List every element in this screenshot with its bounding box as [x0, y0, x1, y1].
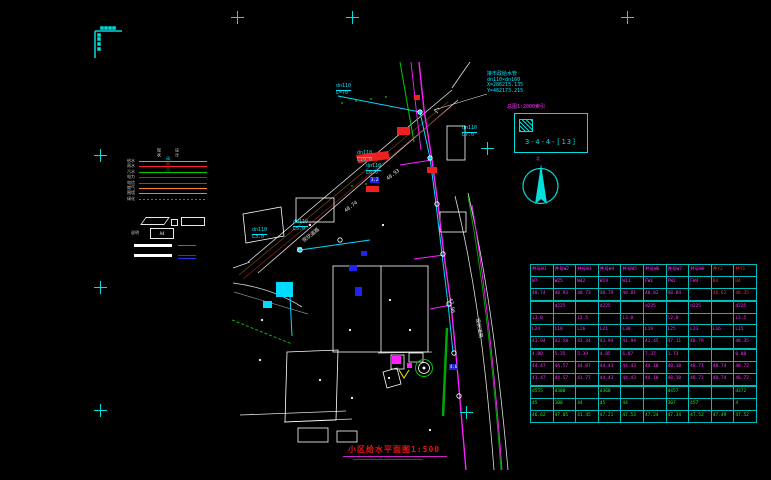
table-cell: L23 [689, 325, 712, 337]
legend-line-sample [139, 188, 207, 189]
table-cell: L30 [621, 325, 644, 337]
table-cell [531, 302, 554, 314]
table-cell: 41.45 [576, 411, 599, 423]
table-cell [712, 399, 735, 411]
water-pipe-cyan [263, 96, 453, 352]
table-cell: 47.34 [667, 411, 690, 423]
table-cell: 井号W1 [531, 265, 554, 277]
north-arrow-icon [523, 164, 558, 204]
legend-magenta-line [178, 245, 196, 246]
table-cell: 457 [689, 399, 712, 411]
table-cell [689, 289, 712, 302]
legend-symbol: 雨 [166, 162, 170, 166]
table-cell: 井Y1 [734, 265, 757, 277]
table-cell: L19 [644, 325, 667, 337]
table-cell: W42 [576, 277, 599, 289]
legend-blue-line [178, 255, 196, 259]
pipe-label: dn110L6.0 [366, 164, 381, 176]
table-cell: 47.53 [621, 411, 644, 423]
table-cell: 44.43 [599, 374, 622, 387]
legend-row-label: 电信 [127, 181, 135, 185]
table-cell: 47.52 [734, 411, 757, 423]
table-cell: i3.5 [734, 314, 757, 326]
legend-symbol: 阀 [166, 157, 170, 161]
legend-line-sample [139, 199, 207, 200]
table-cell: L24 [531, 325, 554, 337]
table-cell [644, 387, 667, 399]
table-cell: 47.52 [689, 411, 712, 423]
table-cell: i3.0 [621, 314, 644, 326]
table-cell: 47.11 [667, 337, 690, 350]
table-cell: 48.79 [599, 289, 622, 302]
legend-symbol: 污 [166, 168, 170, 172]
table-cell: 4.80 [531, 350, 554, 362]
table-cell: L25 [667, 325, 690, 337]
table-cell: 48.72 [734, 374, 757, 387]
legend-rectangle [181, 217, 205, 226]
blue-marks [349, 251, 367, 296]
legend-line-sample [139, 172, 207, 173]
table-cell: 48.79 [689, 337, 712, 350]
table-cell: W25 [554, 277, 577, 289]
table-cell: 47.05 [554, 411, 577, 423]
table-cell: 井号W8 [689, 265, 712, 277]
table-cell: 48.10 [667, 362, 690, 374]
table-cell: L18 [554, 325, 577, 337]
table-cell: 47.49 [712, 411, 735, 423]
table-cell: L26 [576, 325, 599, 337]
table-cell: FW2 [667, 277, 690, 289]
table-cell: 44 [576, 399, 599, 411]
table-cell: 1.73 [667, 350, 690, 362]
legend-line-sample [139, 161, 207, 162]
table-cell: 7.37 [644, 350, 667, 362]
title-underline-magenta [343, 456, 447, 457]
table-cell: 43.94 [599, 337, 622, 350]
table-cell [712, 387, 735, 399]
table-cell: 47.21 [599, 411, 622, 423]
legend-row-label: 绿化 [127, 197, 135, 201]
table-cell: 48.82 [644, 289, 667, 302]
table-cell: W11 [621, 277, 644, 289]
legend-line-sample [139, 166, 207, 167]
title-underline-blue [353, 459, 423, 460]
table-cell [644, 399, 667, 411]
table-cell: W7 [531, 277, 554, 289]
table-cell: 41.77 [576, 374, 599, 387]
table-cell: 44.10 [644, 374, 667, 387]
table-cell: 48.35 [734, 337, 757, 350]
table-cell: FW1 [644, 277, 667, 289]
table-cell: 48.71 [689, 374, 712, 387]
table-cell: d225 [689, 302, 712, 314]
table-cell: L16 [712, 325, 735, 337]
table-cell [712, 350, 735, 362]
table-cell: 43.34 [576, 337, 599, 350]
index-code: 3-4-4-[13] [525, 138, 577, 146]
table-cell [689, 350, 712, 362]
table-cell [689, 387, 712, 399]
table-cell: 44.43 [621, 362, 644, 374]
table-cell: d457 [667, 387, 690, 399]
table-cell: d555 [531, 387, 554, 399]
table-cell: 48.71 [689, 362, 712, 374]
table-cell [554, 314, 577, 326]
legend-note-box: A4 [150, 228, 174, 239]
tree-symbol [416, 360, 433, 377]
index-box: 3-4-4-[13] [514, 113, 588, 153]
table-cell: 48.74 [712, 362, 735, 374]
table-cell: 46.62 [531, 411, 554, 423]
table-cell [621, 387, 644, 399]
table-cell: 井号W2 [554, 265, 577, 277]
table-cell: 48.84 [667, 289, 690, 302]
corner-mark [95, 27, 122, 58]
legend-note-label: 说明 [131, 231, 139, 235]
table-cell: 井号W6 [644, 265, 667, 277]
table-cell: 100 [554, 399, 577, 411]
table-cell: 41.45 [644, 337, 667, 350]
legend-line-sample [139, 183, 207, 184]
table-cell: 5.39 [576, 350, 599, 362]
table-cell: 井号W4 [599, 265, 622, 277]
pipe-label: dn110L7.0 [462, 126, 477, 138]
blue-tag-label: 3.2 [370, 177, 379, 183]
table-cell: 307 [667, 399, 690, 411]
table-cell: L15 [734, 325, 757, 337]
drawing-title: 小区给水平面图1:500 [348, 444, 440, 455]
table-cell [712, 337, 735, 350]
table-cell: i2.5 [576, 314, 599, 326]
table-cell: 48.93 [554, 289, 577, 302]
pipe-data-table: 井号W1井号W2井号W3井号W4井号W5井号W6井号W7井号W8井Y2井Y1W7… [530, 264, 757, 423]
table-cell: L21 [599, 325, 622, 337]
table-cell: d225 [554, 302, 577, 314]
table-cell: d368 [599, 387, 622, 399]
table-cell: W19 [599, 277, 622, 289]
table-cell: 45 [531, 399, 554, 411]
leader-line [434, 94, 487, 113]
scale-bar-2 [134, 254, 172, 257]
table-cell: d225 [734, 302, 757, 314]
table-cell: 47.24 [644, 411, 667, 423]
table-cell [576, 387, 599, 399]
table-cell: 4 [734, 399, 757, 411]
table-cell: 44.43 [599, 362, 622, 374]
table-cell: 43.58 [554, 337, 577, 350]
blue-tag-label: 4.6 [449, 364, 458, 370]
table-cell: 48.72 [734, 362, 757, 374]
scale-bar-1 [134, 244, 172, 247]
table-cell: 6.87 [621, 350, 644, 362]
table-cell: 41.94 [621, 337, 644, 350]
table-cell [599, 314, 622, 326]
table-cell: 44.43 [621, 374, 644, 387]
table-cell: d300 [554, 387, 577, 399]
table-cell [621, 302, 644, 314]
table-cell: 48.81 [621, 289, 644, 302]
table-cell: 48.74 [531, 289, 554, 302]
table-cell: D4 [734, 277, 757, 289]
table-cell: 48.73 [576, 289, 599, 302]
yellow-mark [399, 370, 409, 378]
note-line-4: Y=482173.215 [487, 89, 523, 95]
table-cell: 44.57 [554, 374, 577, 387]
table-cell: 44.47 [531, 362, 554, 374]
coordinate-note: 接市政给水管 dn110×dn160 X=286215.135 Y=482173… [487, 72, 523, 94]
table-cell: 48.62 [712, 289, 735, 302]
table-cell [576, 302, 599, 314]
table-cell: 44 [621, 399, 644, 411]
legend-column-header: 现状 [157, 148, 161, 158]
table-cell [689, 314, 712, 326]
table-cell: d225 [644, 302, 667, 314]
pipe-label: dn110L3.0 [252, 228, 267, 240]
pipe-label: dn110L=70 [336, 84, 351, 96]
table-cell: 0.00 [734, 350, 757, 362]
table-cell: 井号W3 [576, 265, 599, 277]
table-cell: 井Y2 [712, 265, 735, 277]
index-note: 总图1:2000索引 [507, 105, 545, 110]
table-cell: 44.10 [644, 362, 667, 374]
legend-row-label: 围墙 [127, 191, 135, 195]
hatch-square-icon [519, 119, 533, 132]
table-cell [644, 314, 667, 326]
table-cell: 44.57 [554, 362, 577, 374]
table-cell: B4 [712, 277, 735, 289]
table-cell [712, 314, 735, 326]
legend-line-sample [139, 193, 207, 194]
pipe-label: dn110L19.0 [357, 151, 372, 163]
table-cell: d372 [734, 387, 757, 399]
legend-row-label: 电力 [127, 175, 135, 179]
table-cell: 44.07 [576, 362, 599, 374]
table-cell [712, 302, 735, 314]
table-cell: i3.0 [531, 314, 554, 326]
table-cell: FW4 [689, 277, 712, 289]
table-cell: 45 [599, 399, 622, 411]
table-cell: 5.35 [554, 350, 577, 362]
pipe-label: dn110L5.0 [293, 220, 308, 232]
legend-square [171, 219, 178, 226]
table-cell: 48.74 [712, 374, 735, 387]
table-cell: 井号W5 [621, 265, 644, 277]
table-cell: 41.47 [531, 374, 554, 387]
cad-canvas: 接市政给水管 dn110×dn160 X=286215.135 Y=482173… [0, 0, 771, 480]
legend-row-label: 雨水 [127, 164, 135, 168]
table-cell: 4.85 [599, 350, 622, 362]
table-cell: 41.94 [531, 337, 554, 350]
table-cell: d225 [599, 302, 622, 314]
table-cell: 井号W7 [667, 265, 690, 277]
legend-line-sample [139, 177, 207, 178]
table-cell: 48.10 [667, 374, 690, 387]
table-cell: i2.0 [667, 314, 690, 326]
table-cell: 48.35 [734, 289, 757, 302]
legend-column-header: 设计 [175, 148, 179, 158]
table-cell [667, 302, 690, 314]
north-label: 北 [536, 156, 540, 162]
